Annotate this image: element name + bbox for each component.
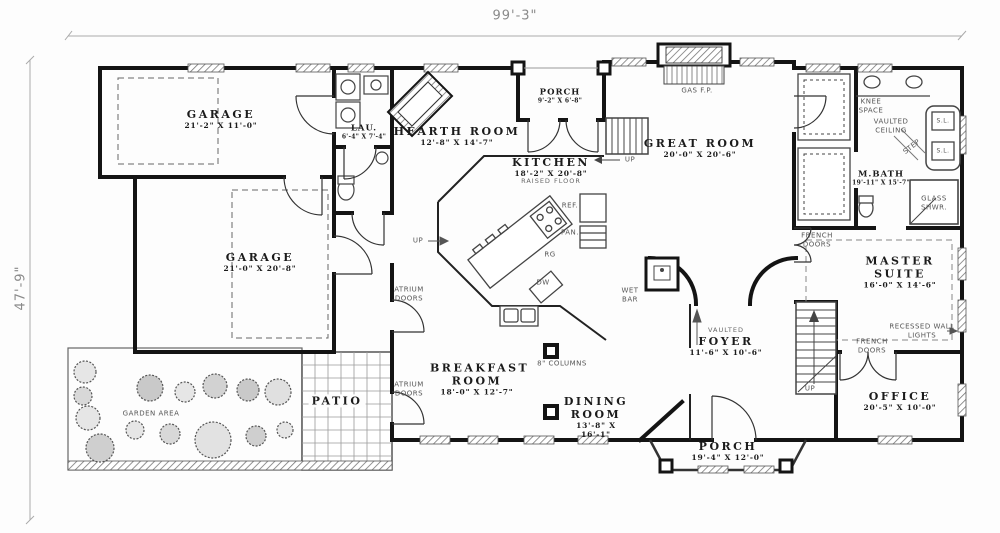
annotation-shelf-linen-2: S.L. (937, 147, 950, 155)
sink (864, 76, 880, 88)
annotation-gas-fireplace: GAS F.P. (681, 87, 712, 96)
room-label-patio: PATIO (309, 394, 366, 407)
room-label-hearth-room: HEARTH ROOM 12'-8" X 14'-7" (394, 125, 521, 147)
refrigerator (580, 194, 606, 222)
gas-fireplace (658, 44, 730, 84)
annotation-pantry: PAN. (561, 229, 579, 238)
room-label-garage-2: GARAGE 21'-0" X 20'-8" (224, 251, 297, 273)
label-garden-area: GARDEN AREA (123, 410, 180, 419)
annotation-glass-shower: GLASS SHWR. (915, 194, 953, 212)
annotation-french-doors-1: FRENCH DOORS (797, 231, 837, 249)
kitchen-fixtures (465, 192, 606, 326)
annotation-vaulted-ceiling: VAULTED CEILING (867, 117, 915, 135)
annotation-french-doors-2: FRENCH DOORS (852, 337, 892, 355)
annotation-knee-space: KNEE SPACE (853, 97, 889, 115)
annotation-range: RG (544, 251, 555, 260)
annotation-up-back-stairs: UP (625, 156, 635, 165)
room-label-porch-bottom: PORCH 19'-4" X 12'-0" (692, 440, 765, 462)
annotation-up-kitchen: UP (413, 237, 423, 246)
room-label-dining-room: DINING ROOM 13'-8" X 16'-1" (563, 395, 629, 439)
dimension-width-label: 99'-3" (492, 9, 537, 24)
foyer-stairs (796, 302, 836, 394)
room-label-garage-1: GARAGE 21'-2" X 11'-0" (185, 108, 258, 130)
garden-and-patio (68, 348, 392, 470)
sink (906, 76, 922, 88)
back-stairs (594, 118, 648, 164)
annotation-wet-bar: WET BAR (617, 286, 643, 304)
room-label-kitchen: KITCHEN 18'-2" X 20'-8" RAISED FLOOR (512, 156, 590, 186)
annotation-atrium-doors-2: ATRIUM DOORS (388, 380, 430, 398)
annotation-up-foyer-stairs: UP (805, 385, 815, 394)
room-label-great-room: GREAT ROOM 20'-0" X 20'-6" (644, 137, 756, 159)
annotation-refrigerator: REF. (562, 202, 578, 211)
room-label-master-bath: M.BATH 19'-11" X 15'-7" (852, 169, 910, 186)
floor-plan-canvas: 99'-3" 47'-9" GARAGE 21'-2" X 11'-0" GAR… (0, 0, 1000, 533)
room-label-master-suite: MASTER SUITE 16'-0" X 14'-6" (857, 254, 943, 289)
room-label-foyer: VAULTED FOYER 11'-6" X 10'-6" (690, 327, 763, 357)
annotation-atrium-doors-1: ATRIUM DOORS (388, 285, 430, 303)
annotation-shelf-linen-1: S.L. (937, 117, 950, 125)
wet-bar-fixture (646, 258, 678, 290)
dimension-depth-label: 47'-9" (14, 265, 29, 310)
kitchen-island (465, 192, 572, 288)
floor-plan-drawing (0, 0, 1000, 533)
sink (376, 152, 388, 164)
pantry (580, 226, 606, 248)
annotation-recessed-wall-lights: RECESSED WALL LIGHTS (883, 322, 961, 340)
room-label-laundry: LAU. 6'-4" X 7'-4" (342, 123, 386, 140)
columns-8in (545, 345, 557, 418)
room-label-office: OFFICE 20'-5" X 10'-0" (864, 390, 937, 412)
room-label-porch-top: PORCH 9'-2" X 6'-8" (538, 87, 582, 104)
room-label-breakfast-room: BREAKFAST ROOM 18'-0" X 12'-7" (430, 361, 524, 396)
annotation-columns: 8" COLUMNS (537, 360, 587, 369)
annotation-dishwasher: DW (536, 279, 549, 288)
